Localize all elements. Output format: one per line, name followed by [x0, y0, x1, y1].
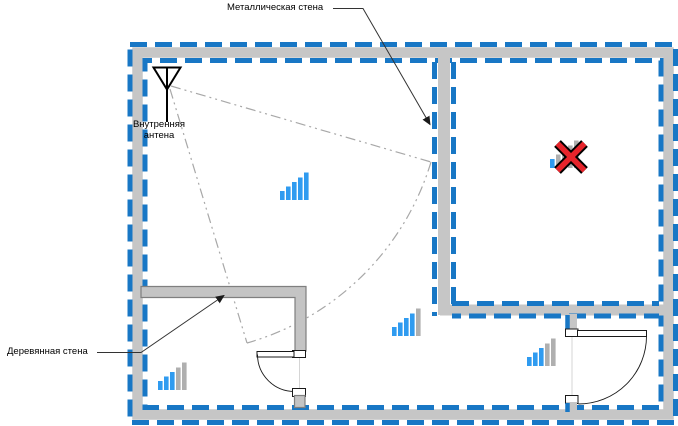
wooden-wall-label: Деревянная стена — [7, 346, 88, 357]
signal-lower-right — [527, 339, 556, 367]
signal-bar — [164, 377, 169, 391]
metal-wall — [435, 49, 454, 316]
coverage-ray-right — [171, 86, 431, 162]
signal-bar — [539, 348, 544, 366]
door-swing-arc — [258, 355, 295, 392]
signal-bar — [182, 363, 187, 391]
door-wooden-room — [257, 351, 306, 408]
signal-bar — [416, 309, 421, 337]
signal-bar — [398, 323, 403, 337]
signal-lower-middle — [392, 309, 421, 337]
door-leaf — [578, 331, 647, 337]
signal-behind-metal-wall — [550, 141, 585, 171]
signal-bar — [176, 368, 181, 391]
signal-bar — [298, 178, 303, 201]
signal-bar — [170, 372, 175, 390]
door-swing-arc — [579, 336, 647, 404]
door-stub-wall — [295, 396, 306, 408]
signal-bar — [280, 191, 285, 200]
door-right-area — [566, 314, 647, 412]
signal-bar — [550, 159, 555, 168]
metal-wall-label: Металлическая стена — [227, 2, 323, 13]
signal-bar — [527, 357, 532, 366]
outer-walls — [130, 45, 676, 423]
metal-wall-leader-arrow — [333, 9, 430, 125]
wifi-floorplan-diagram: Металлическая стена Внутренняя антена Де… — [0, 0, 678, 426]
signal-bar — [158, 381, 163, 390]
outer-wall-outer-dash — [130, 45, 676, 423]
signal-main-room — [280, 173, 309, 201]
signal-bar — [545, 344, 550, 367]
door-jamb — [566, 329, 579, 337]
signal-bar — [286, 187, 291, 201]
wooden-wall-leader-arrow — [97, 296, 224, 353]
signal-bar — [292, 182, 297, 200]
floorplan-svg — [0, 0, 678, 426]
signal-bar — [304, 173, 309, 201]
signal-bar — [533, 353, 538, 367]
door-leaf — [257, 352, 294, 358]
inner-antenna-label: Внутренняя антена — [127, 119, 191, 141]
coverage-arc — [247, 162, 431, 343]
signal-wooden-room — [158, 363, 187, 391]
outer-wall-inner-dash — [145, 61, 661, 408]
signal-bar — [404, 318, 409, 336]
signal-bar — [551, 339, 556, 367]
signal-bar — [392, 327, 397, 336]
signal-bar — [410, 314, 415, 337]
antenna-icon — [154, 68, 181, 123]
signal-indicators — [158, 141, 585, 391]
right-room-bottom-wall — [440, 304, 668, 317]
outer-wall-core — [138, 53, 669, 415]
